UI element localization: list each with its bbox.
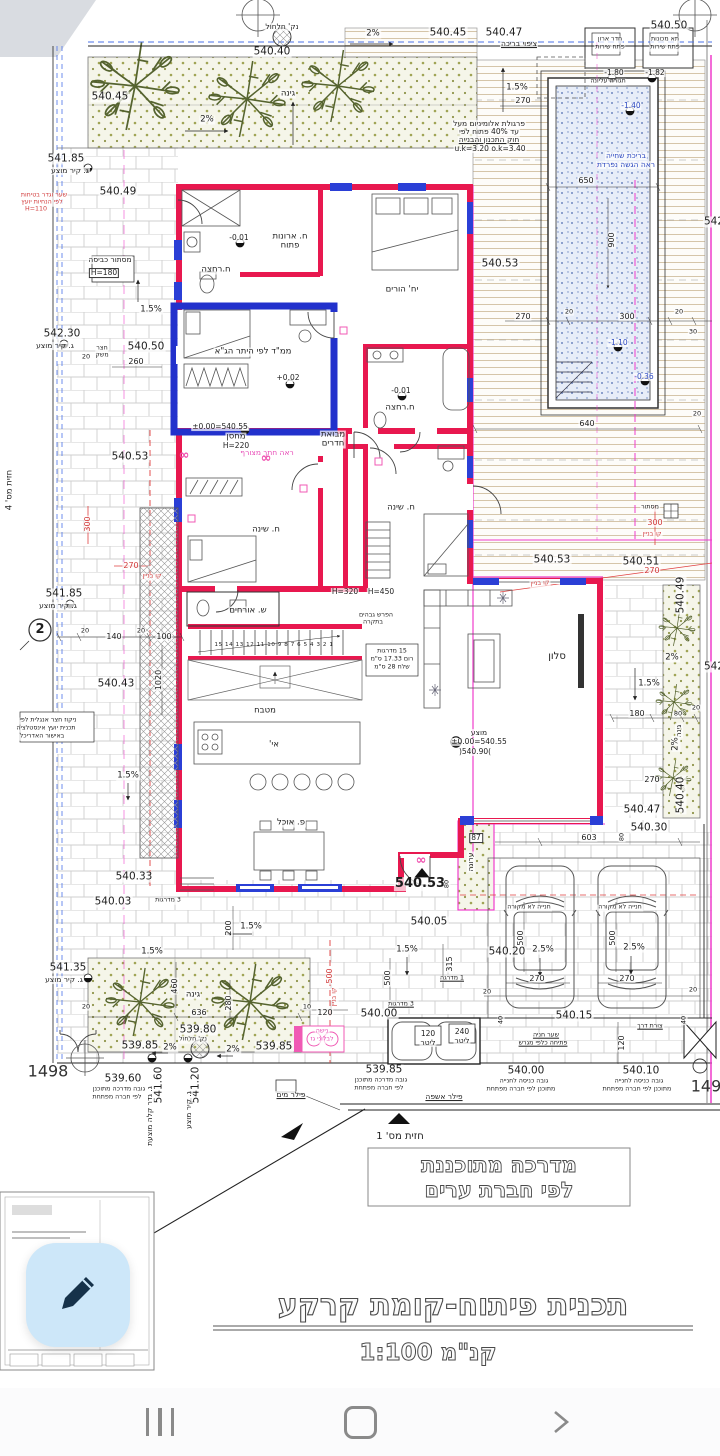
back-button[interactable] [530,1392,590,1452]
floor-plan-canvas[interactable]: מדרכה מתוכננת לפי חברת ערים תכנית פיתוח-… [0,0,720,1456]
android-nav-bar [0,1388,720,1456]
home-circle-icon [344,1406,377,1439]
phone-screen: מדרכה מתוכננת לפי חברת ערים תכנית פיתוח-… [0,0,720,1456]
pencil-icon [55,1270,101,1320]
recents-bars-icon [146,1408,175,1436]
stamp-line2: לפי חברת ערים [425,1178,574,1202]
stamp-line1: מדרכה מתוכננת [421,1153,577,1177]
back-chevron-icon [547,1409,573,1435]
sheet-scale: קנ"מ 1:100 [359,1340,496,1366]
home-button[interactable] [330,1392,390,1452]
sheet-title: תכנית פיתוח-קומת קרקע [278,1288,629,1323]
recents-button[interactable] [130,1392,190,1452]
edit-drawing-button[interactable] [26,1243,130,1347]
